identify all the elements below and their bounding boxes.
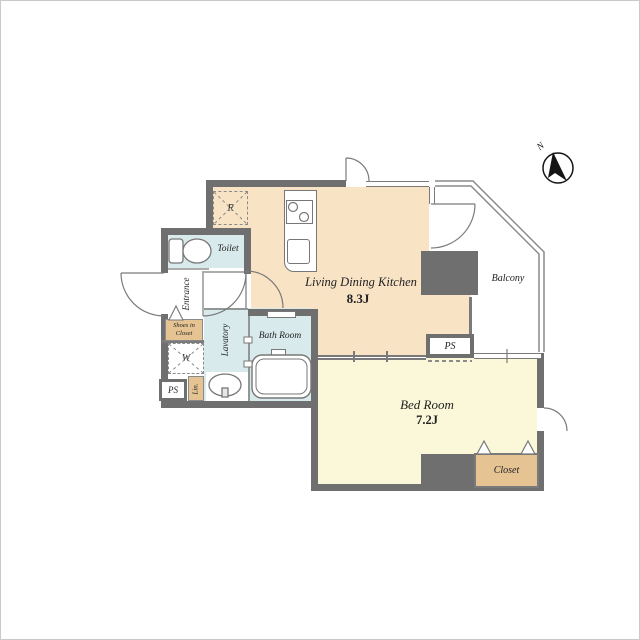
washer-cross [169,344,203,373]
balcony-door-arc [431,204,475,248]
stove-burner-icon [289,203,298,212]
bathroom-label: Bath Room [240,331,320,341]
bedroom-area-label: 7.2J [387,413,467,428]
entrance-label: Entrance [181,254,191,334]
toilet-sliding-door [168,269,244,272]
bathtub-icon [252,355,311,398]
floor-plan: PS PS Lin. Shoes in Closet Closet R W [0,0,640,640]
bedroom-label: Bed Room [367,397,487,413]
balcony-label: Balcony [468,273,548,284]
stove-burner-icon [300,213,309,222]
closet-fold-markers [477,441,535,454]
bedroom-east-door-arc [544,408,567,431]
top-door-arc [346,158,369,181]
ldk-label: Living Dining Kitchen [271,275,451,290]
balcony-railing [435,181,544,352]
bath-door-mark [244,361,252,367]
lavatory-label: Lavatory [220,300,230,380]
refrigerator-cross [214,192,247,224]
plan-linework [1,1,640,640]
entrance-door-arc [121,273,164,316]
north-arrow-icon [543,152,573,183]
toilet-label: Toilet [198,244,258,254]
ldk-area-label: 8.3J [318,291,398,307]
